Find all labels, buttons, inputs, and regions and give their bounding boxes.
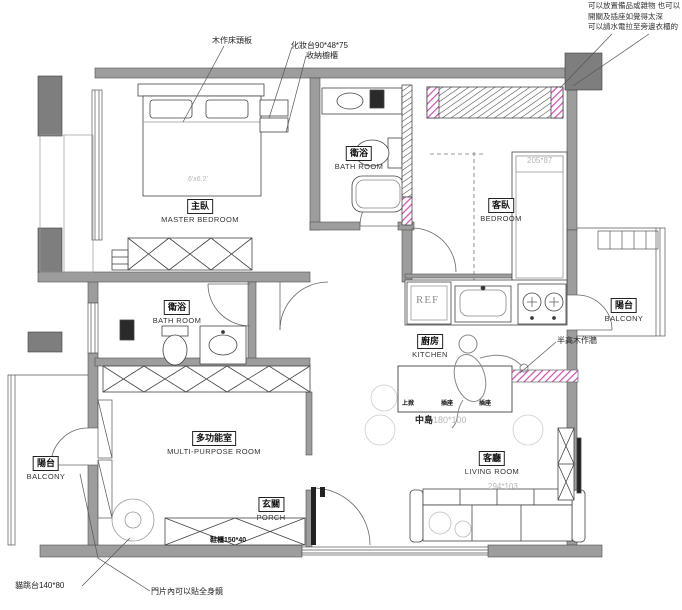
label-bathroom-top-zh: 衛浴 [346,146,372,161]
multi-closet-row [103,366,310,392]
entry-door-leaf [311,487,325,545]
label-porch-zh: 玄關 [258,497,284,512]
label-balcony-left-zh: 陽台 [33,456,59,471]
note-line-2: 開關及插座如覺得太深 [588,12,682,23]
tv-cabinet [558,428,581,500]
label-multi-purpose: 多功能室 MULTI-PURPOSE ROOM [167,428,261,456]
annotation-storage-cabinet: 收納櫥櫃 [306,50,338,61]
label-master-bedroom: 主臥 MASTER BEDROOM [161,196,239,224]
label-island: 中島180*100 [415,413,467,426]
label-bathroom-mid: 衛浴 BATH ROOM [153,297,201,325]
label-bedroom2-en: BEDROOM [480,214,522,223]
label-island-dim: 180*100 [433,415,467,425]
annotation-headboard: 木作床頭板 [212,35,252,46]
annotation-mirror-note: 門片內可以貼全身鏡 [151,586,223,597]
island-slot-3: 插座 [479,398,491,407]
label-balcony-left: 陽台 BALCONY [27,453,66,481]
fridge-label: REF [416,294,439,306]
label-bathroom-top: 衛浴 BATH ROOM [335,143,383,171]
master-bed [138,84,288,196]
dim-master-bed: 6'x6.2' [188,176,208,183]
label-bathroom-mid-zh: 衛浴 [164,300,190,315]
note-top-right: 可以放置備品或雜物 也可以 開關及插座如覺得太深 可以請水電拉至旁邊衣櫃的 [588,1,682,33]
label-kitchen-zh: 廚房 [417,334,443,349]
wardrobe-left-wall [98,400,112,518]
dim-bedroom2-bed: 205*87 [527,156,552,165]
cat-platform-circle [112,499,154,541]
annotation-half-wall: 半高木作牆 [557,335,597,346]
label-bathroom-top-en: BATH ROOM [335,162,383,171]
label-bathroom-mid-en: BATH ROOM [153,316,201,325]
label-master-bedroom-zh: 主臥 [187,199,213,214]
master-dresser [112,238,252,270]
note-line-1: 可以放置備品或雜物 也可以 [588,1,682,12]
label-bedroom2-zh: 客臥 [488,198,514,213]
label-balcony-right: 陽台 BALCONY [605,295,644,323]
annotation-shoe-cabinet: 鞋櫃150*40 [210,535,246,545]
label-balcony-right-zh: 陽台 [611,298,637,313]
island-slot-2: 插座 [441,398,453,407]
label-porch: 玄關 PORCH [256,494,285,522]
annotation-cat-platform: 貓跳台140*80 [15,580,64,591]
label-island-zh: 中島 [415,415,433,425]
label-master-bedroom-en: MASTER BEDROOM [161,215,239,224]
label-bedroom2: 客臥 BEDROOM [480,195,522,223]
island-slot-1: 上掀 [402,398,414,407]
floorplan-linework [0,0,682,610]
label-kitchen-en: KITCHEN [412,350,448,359]
label-balcony-left-en: BALCONY [27,472,66,481]
label-kitchen: 廚房 KITCHEN [412,331,448,359]
note-line-3: 可以請水電拉至旁邊衣櫃的 [588,22,682,33]
label-living-room: 客廳 LIVING ROOM [465,448,519,476]
label-multi-purpose-en: MULTI-PURPOSE ROOM [167,447,261,456]
label-living-room-en: LIVING ROOM [465,467,519,476]
label-multi-purpose-zh: 多功能室 [192,431,236,446]
label-porch-en: PORCH [256,513,285,522]
label-living-room-zh: 客廳 [479,451,505,466]
dim-sofa: 294*103 [488,482,518,491]
label-balcony-right-en: BALCONY [605,314,644,323]
island [398,366,512,412]
floorplan-canvas: 可以放置備品或雜物 也可以 開關及插座如覺得太深 可以請水電拉至旁邊衣櫃的 木作… [0,0,682,610]
